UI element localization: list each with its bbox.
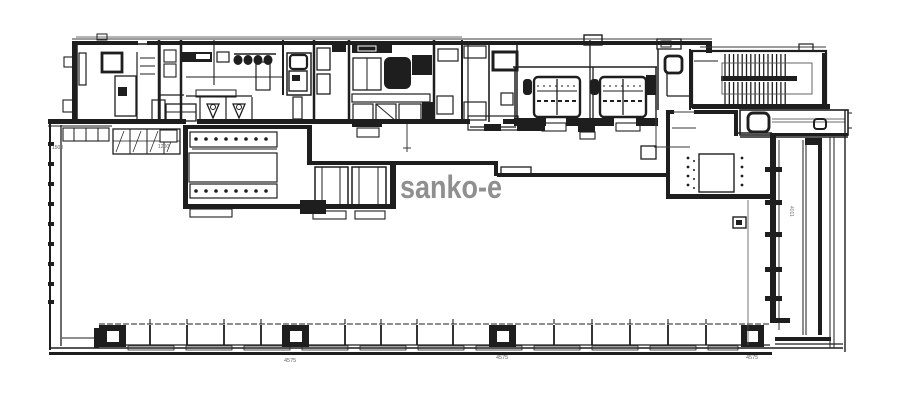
svg-text:4011: 4011 (788, 206, 794, 217)
svg-text:4575: 4575 (496, 355, 508, 361)
svg-text:1500: 1500 (52, 145, 63, 151)
svg-text:4575: 4575 (284, 358, 296, 364)
svg-text:4575: 4575 (746, 355, 758, 361)
svg-text:1200: 1200 (158, 144, 169, 150)
svg-text:sanko-e: sanko-e (400, 169, 502, 205)
